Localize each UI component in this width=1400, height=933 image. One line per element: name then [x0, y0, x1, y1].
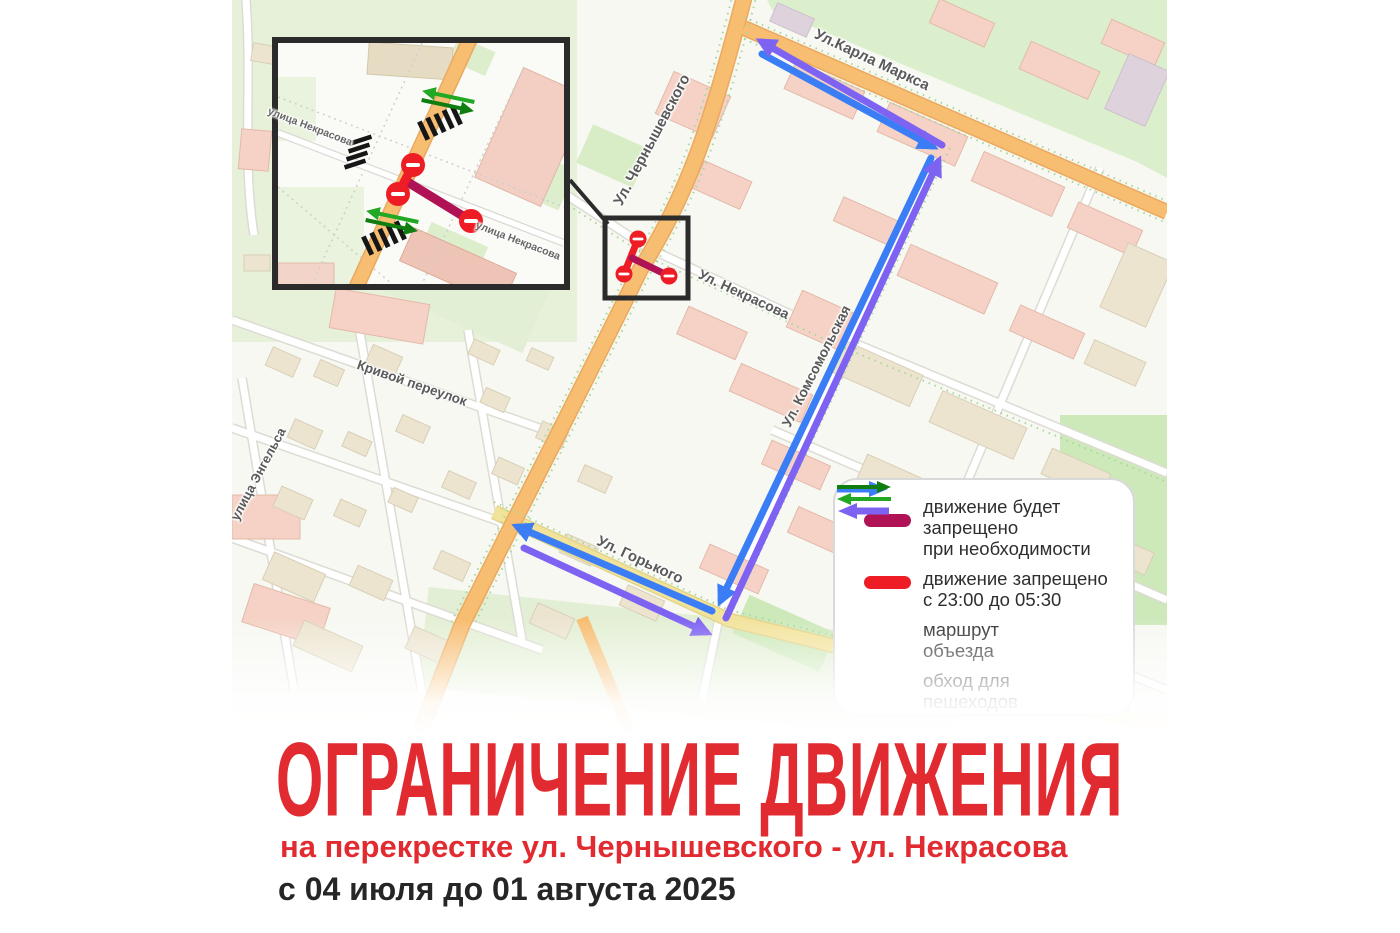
legend-item-label: движение запрещено с 23:00 до 05:30 [923, 568, 1108, 610]
legend-item-label: движение будет запрещено при необходимос… [923, 496, 1091, 559]
traffic-restriction-poster: Ул. Чернышевского Ул.Карла Маркса Ул. Не… [0, 0, 1400, 933]
pedestrian-arrows-icon [835, 480, 893, 506]
legend-item-restricted-night: движение запрещено с 23:00 до 05:30 [851, 568, 1123, 610]
red-bar-icon [864, 576, 911, 589]
poster-date-range: с 04 июля до 01 августа 2025 [278, 871, 736, 908]
map-bottom-fade [232, 618, 1167, 735]
title-block: ОГРАНИЧЕНИЕ ДВИЖЕНИЯ [232, 728, 1167, 789]
poster-subtitle: на перекрестке ул. Чернышевского - ул. Н… [280, 829, 1067, 865]
city-map: Ул. Чернышевского Ул.Карла Маркса Ул. Не… [232, 0, 1167, 735]
poster-title: ОГРАНИЧЕНИЕ ДВИЖЕНИЯ [276, 728, 1123, 833]
intersection-inset-map: улица Некрасова улица Некрасова [272, 37, 570, 290]
